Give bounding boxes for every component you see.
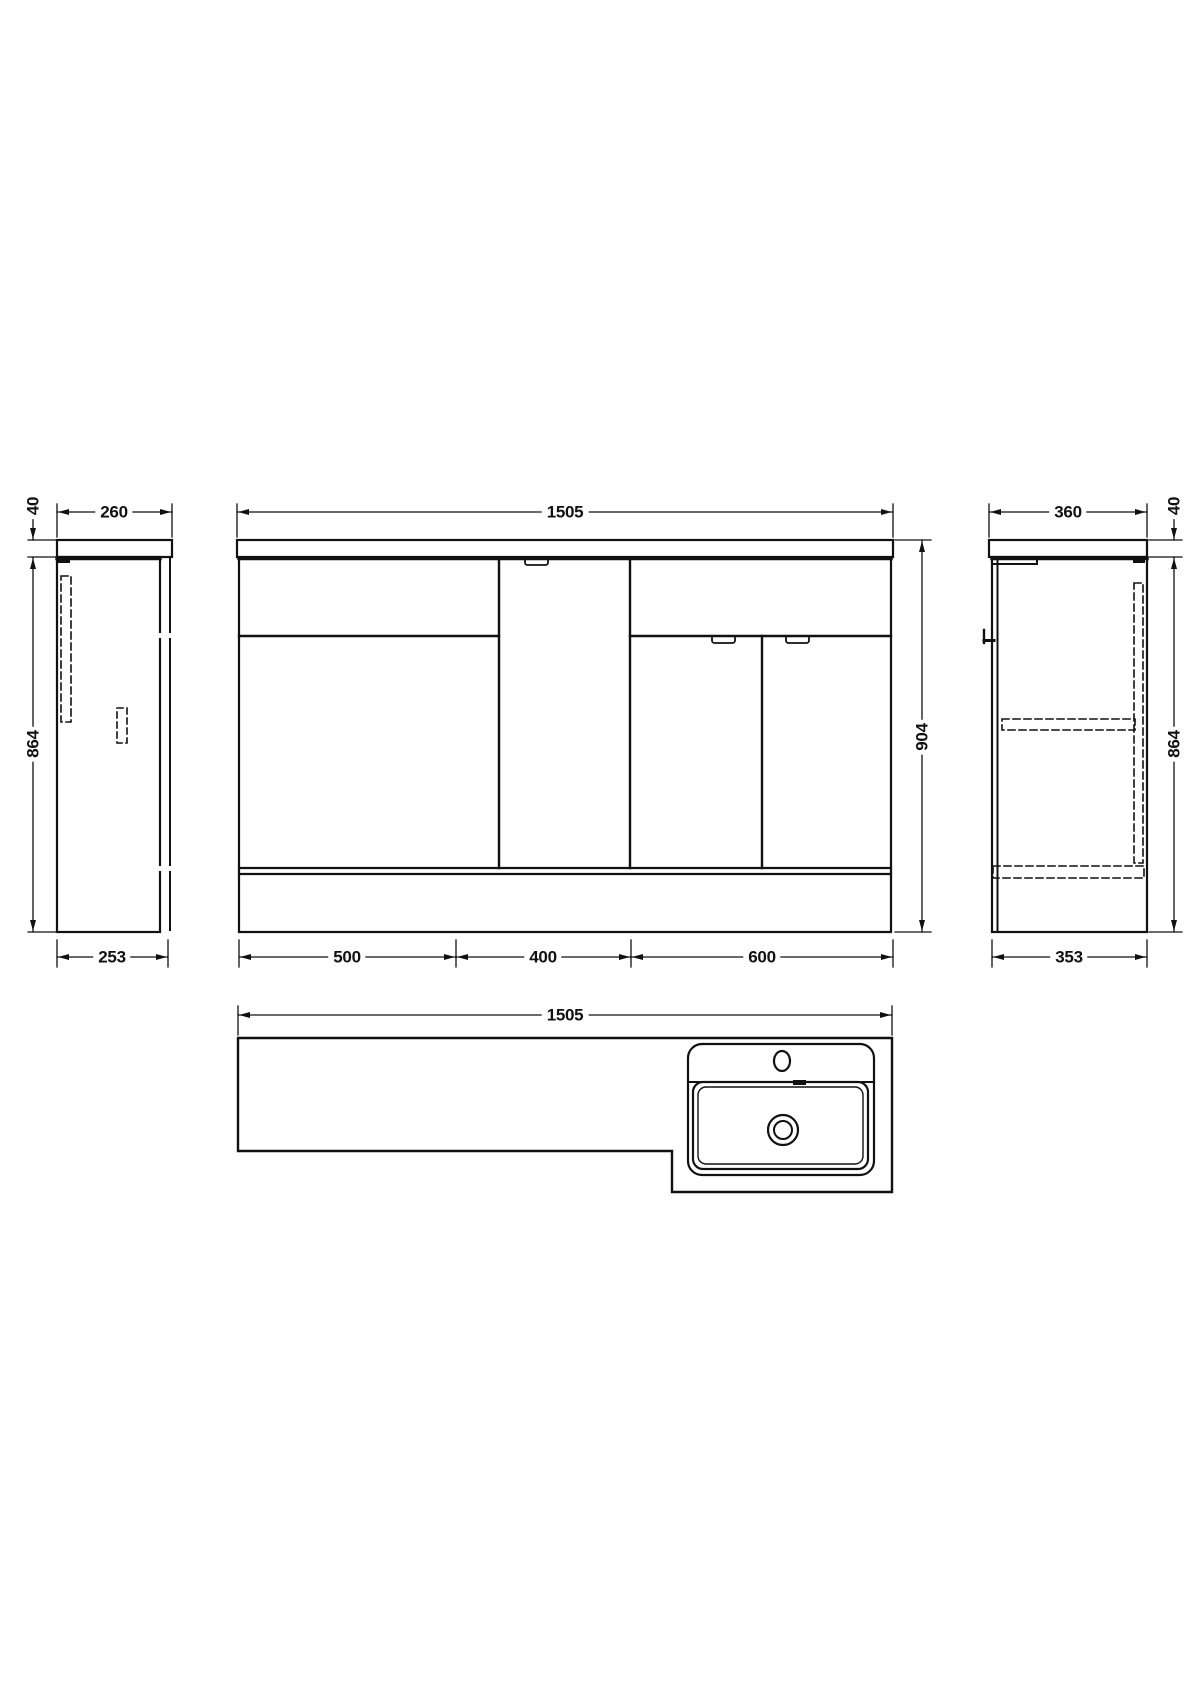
waste-drain-inner: [774, 1121, 792, 1139]
dim-left-height: 864: [25, 726, 42, 761]
left-countertop: [57, 540, 172, 557]
dim-right-top-width: 360: [1049, 504, 1086, 521]
overflow-slot: [793, 1080, 806, 1085]
dim-arrowheads: [30, 509, 1177, 1018]
tap-hole: [774, 1051, 790, 1071]
sink-basin: [693, 1082, 868, 1169]
left-hinge-mark: [58, 559, 70, 563]
drawing-linework: [0, 0, 1200, 1698]
front-countertop: [237, 540, 893, 557]
front-view: [237, 540, 893, 932]
left-hidden-knob: [117, 708, 127, 743]
dim-front-section-3: 600: [743, 949, 780, 966]
drawing-canvas: 260 40 864 253 1505 904 500 400 600 360 …: [0, 0, 1200, 1698]
front-handle-right-door-2: [786, 637, 809, 643]
dimension-lines: [28, 504, 1182, 1035]
left-body: [57, 557, 160, 932]
left-side-view: [57, 540, 172, 932]
dim-right-height: 864: [1166, 726, 1183, 761]
dim-left-thickness: 40: [25, 493, 42, 519]
dim-right-bottom-depth: 353: [1050, 949, 1087, 966]
right-hidden-base: [993, 866, 1144, 878]
sink-outer: [688, 1044, 874, 1175]
front-body: [239, 558, 891, 932]
left-hidden-handle: [61, 576, 71, 722]
right-body: [992, 557, 1147, 932]
waste-drain-outer: [768, 1115, 798, 1145]
dim-front-section-2: 400: [524, 949, 561, 966]
plan-view: [238, 1038, 892, 1192]
dim-plan-width: 1505: [542, 1007, 589, 1024]
sink-basin-inner: [698, 1087, 863, 1164]
front-handle-right-door-1: [712, 637, 735, 643]
dim-left-bottom-depth: 253: [93, 949, 130, 966]
right-countertop: [989, 540, 1147, 557]
dim-front-section-1: 500: [328, 949, 365, 966]
dim-front-height: 904: [914, 719, 931, 754]
dim-right-thickness: 40: [1166, 493, 1183, 519]
right-side-view: [984, 540, 1147, 932]
right-hidden-shelf: [1002, 719, 1135, 730]
dim-front-top-width: 1505: [542, 504, 589, 521]
right-hinge-mark: [1133, 559, 1145, 563]
dim-left-top-width: 260: [95, 504, 132, 521]
